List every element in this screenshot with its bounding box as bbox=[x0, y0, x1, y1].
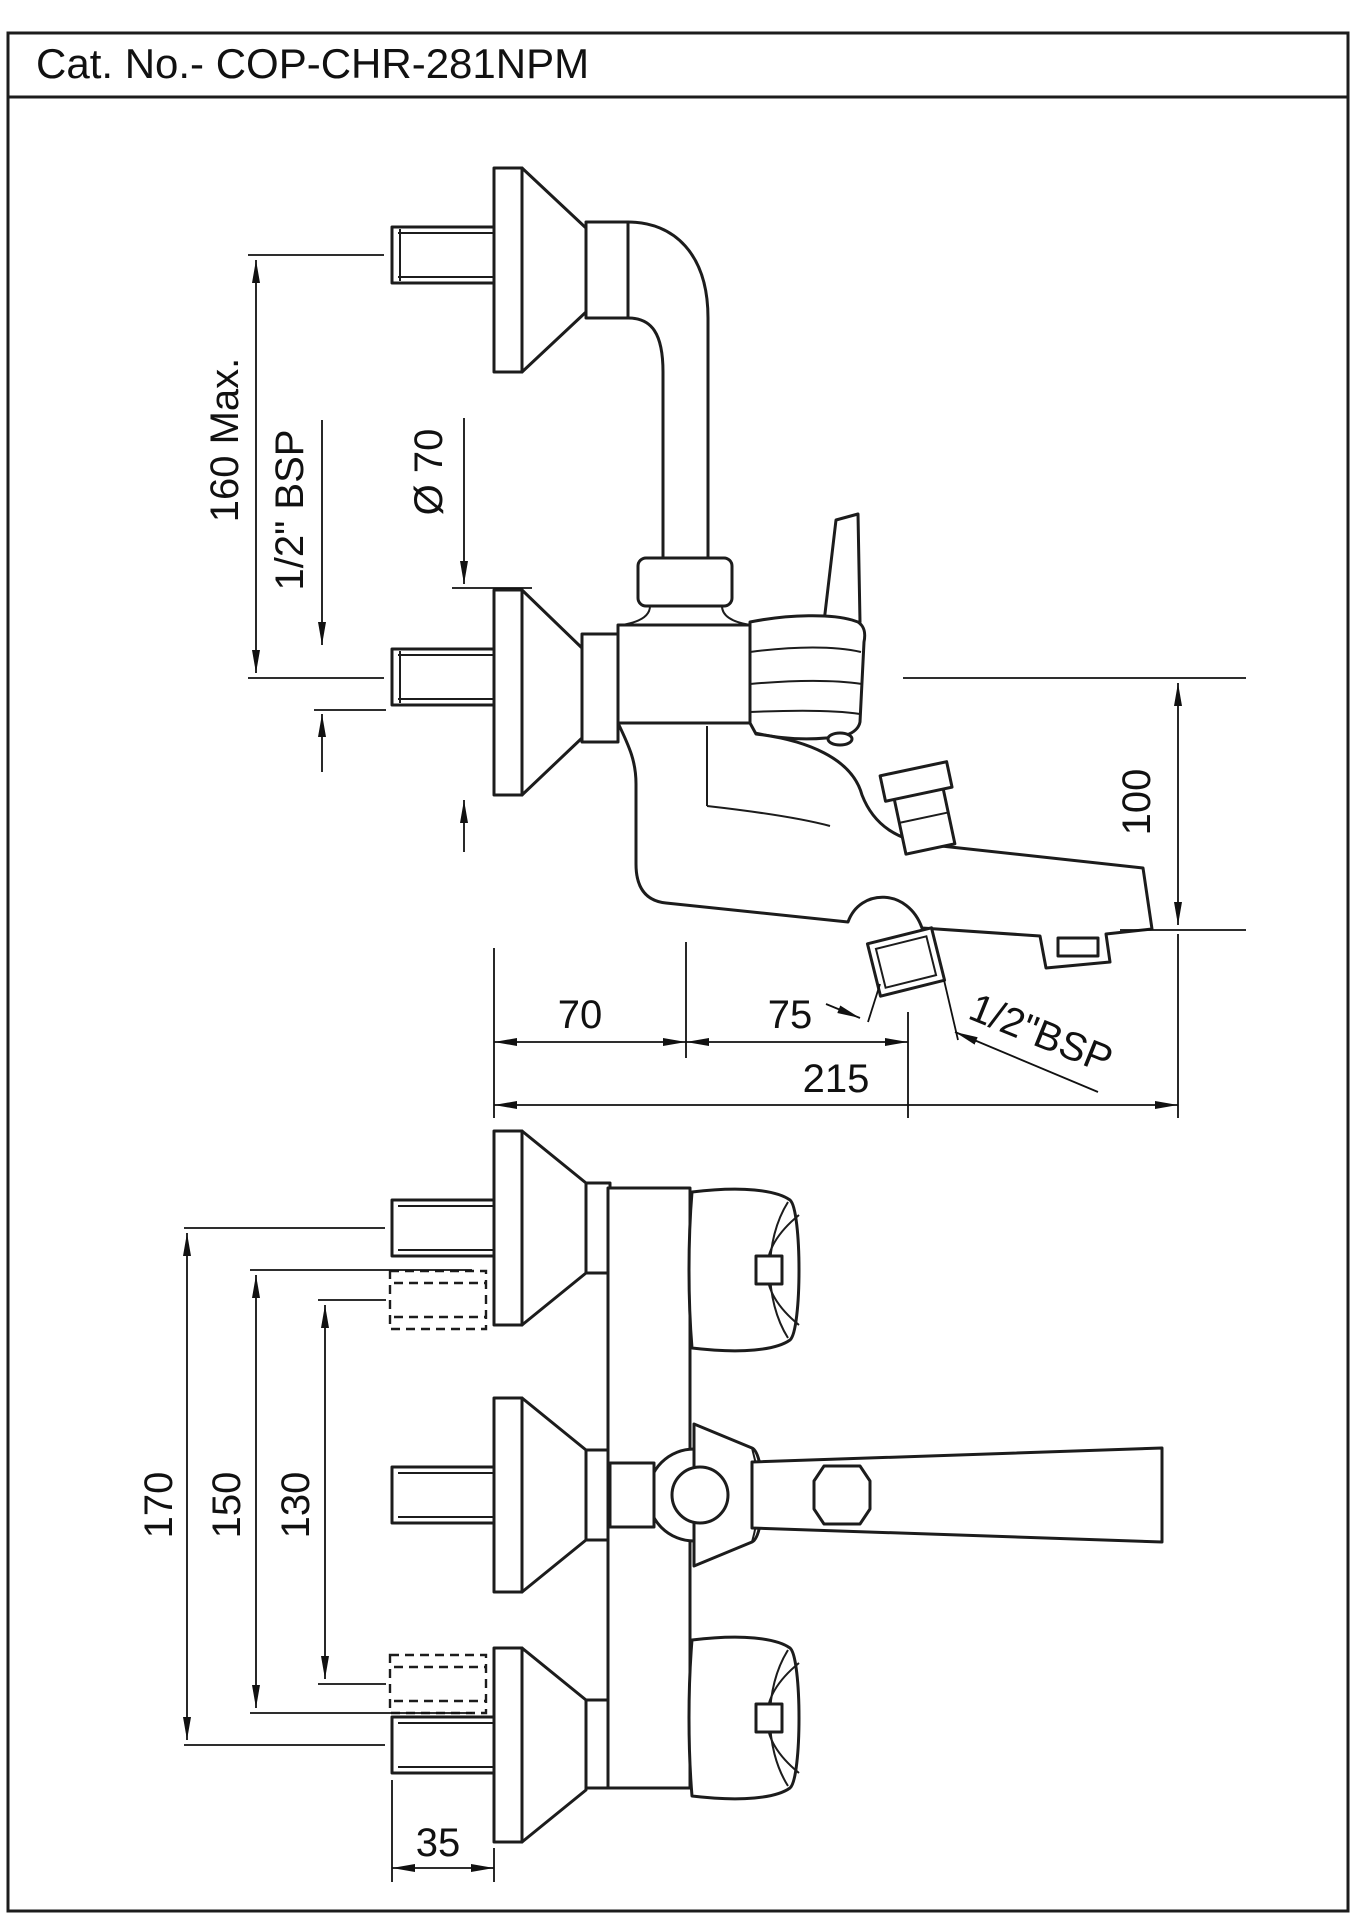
dim-130-label: 130 bbox=[274, 1472, 318, 1539]
catalog-number: Cat. No.- COP-CHR-281NPM bbox=[36, 40, 589, 87]
elbow-inner bbox=[628, 318, 663, 558]
control-knob bbox=[750, 616, 865, 739]
dim-35-label: 35 bbox=[416, 1821, 461, 1865]
plan-top-flange-cone bbox=[522, 1131, 586, 1325]
mixer-body bbox=[618, 514, 1152, 996]
lower-flange-cone bbox=[522, 590, 582, 795]
dim-70-label: 70 bbox=[558, 993, 603, 1037]
dim-160-label: 160 Max. bbox=[203, 358, 247, 523]
riser-collar bbox=[638, 558, 732, 606]
plan-bottom-nipple bbox=[392, 1717, 494, 1773]
upper-collar bbox=[586, 222, 628, 318]
upper-flange-cone bbox=[522, 168, 586, 372]
ext-line bbox=[868, 984, 880, 1022]
dim-215-label: 215 bbox=[803, 1057, 870, 1101]
hidden-nipple-lower bbox=[390, 1655, 486, 1713]
technical-drawing: Cat. No.- COP-CHR-281NPM bbox=[0, 0, 1356, 1920]
lever-handle bbox=[824, 514, 860, 622]
plan-bottom-flange-plate bbox=[494, 1648, 522, 1842]
lower-collar bbox=[582, 634, 618, 742]
plan-bottom-knob bbox=[689, 1637, 799, 1799]
side-view: 160 Max. 1/2" BSP Ø 70 100 70 bbox=[203, 168, 1246, 1118]
lower-flange-plate bbox=[494, 590, 522, 795]
hidden-nipple-upper bbox=[390, 1271, 486, 1329]
dim-100-label: 100 bbox=[1115, 769, 1159, 836]
upper-flange-plate bbox=[494, 168, 522, 372]
shower-elbow-stem bbox=[610, 1463, 654, 1527]
plan-top-flange-plate bbox=[494, 1131, 522, 1325]
neck-curve bbox=[722, 606, 750, 625]
lower-inlet bbox=[392, 590, 618, 795]
plan-mid-nipple bbox=[392, 1467, 494, 1523]
plan-top-collar bbox=[586, 1183, 610, 1273]
plan-bottom-collar bbox=[586, 1700, 610, 1788]
plan-view: 170 150 130 35 bbox=[137, 1131, 1162, 1882]
drawing-sheet: Cat. No.- COP-CHR-281NPM bbox=[0, 0, 1356, 1920]
dim-dia70-label: Ø 70 bbox=[407, 429, 451, 516]
plan-bottom-flange-cone bbox=[522, 1648, 586, 1842]
lower-nipple bbox=[392, 649, 494, 705]
dim-75-label: 75 bbox=[768, 993, 813, 1037]
dim-bsp-label: 1/2" BSP bbox=[268, 430, 312, 591]
plan-view-dimensions: 170 150 130 35 bbox=[137, 1228, 494, 1882]
callout-arrow-left bbox=[826, 1004, 860, 1018]
knob-index bbox=[756, 1256, 782, 1284]
spout bbox=[618, 723, 1152, 968]
knob-screw-cap bbox=[828, 733, 852, 745]
valve-body bbox=[618, 625, 750, 723]
shower-elbow-inner bbox=[672, 1467, 728, 1523]
aerator-outlet bbox=[1058, 938, 1098, 956]
elbow-outer bbox=[628, 222, 708, 558]
plan-legs bbox=[390, 1131, 610, 1842]
plan-mid-flange-plate bbox=[494, 1398, 522, 1592]
upper-nipple bbox=[392, 227, 494, 283]
plan-top-nipple bbox=[392, 1200, 494, 1256]
plan-mid-flange-cone bbox=[522, 1398, 586, 1592]
dim-150-label: 150 bbox=[205, 1472, 249, 1539]
plan-spout bbox=[672, 1424, 1162, 1566]
plan-mid-collar bbox=[586, 1450, 610, 1540]
dim-170-label: 170 bbox=[137, 1472, 181, 1539]
spout-hex-port bbox=[814, 1466, 870, 1524]
ext-line bbox=[944, 980, 958, 1040]
plan-top-knob bbox=[689, 1189, 799, 1351]
knob-index bbox=[756, 1704, 782, 1732]
plan-body bbox=[608, 1188, 1162, 1799]
neck-curve bbox=[622, 606, 650, 625]
